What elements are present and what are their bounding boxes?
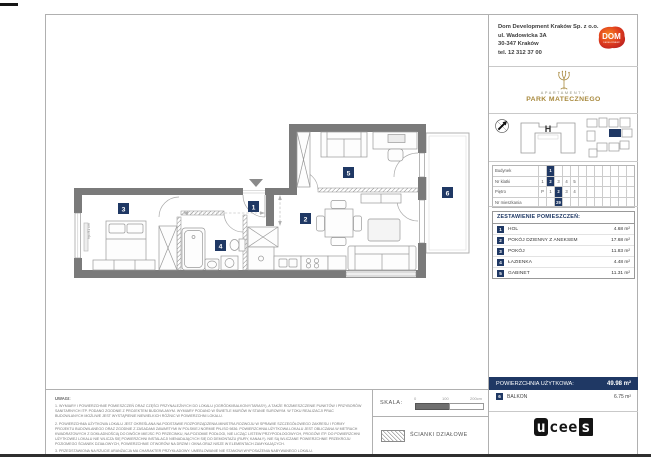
svg-text:6: 6 <box>446 190 450 197</box>
location-cell: 4 <box>562 177 570 187</box>
location-table-row: PiętroP1234 <box>493 186 634 197</box>
legend-label: ŚCIANKI DZIAŁOWE <box>410 432 468 438</box>
brand-upper-label: APARTAMENTY <box>489 91 638 95</box>
room-number-badge: 3 <box>497 248 504 255</box>
svg-text:H: H <box>545 124 552 134</box>
scale-bar-dark-segment <box>415 403 450 410</box>
overview-section: H <box>489 113 638 161</box>
sheet-frame: hp=91 cm 1 2 3 4 5 <box>45 14 638 455</box>
floor-plan: hp=91 cm 1 2 3 4 5 <box>46 15 488 389</box>
location-cell: 4 <box>570 187 578 197</box>
brand-section: APARTAMENTY PARK MATECZNEGO <box>489 66 638 113</box>
location-cell <box>594 166 602 176</box>
company-phone: tel. 12 312 37 00 <box>498 49 599 58</box>
furniture-bedroom <box>84 221 177 270</box>
usable-area-bar: POWIERZCHNIA UŻYTKOWA: 49.98 m² <box>489 377 638 390</box>
room-name: GABINET <box>508 271 530 276</box>
svg-text:4: 4 <box>219 243 223 250</box>
room-area: 17.68 m² <box>611 238 630 243</box>
site-plan-map <box>584 117 636 159</box>
company-street: ul. Wadowicka 3A <box>498 32 599 41</box>
location-cell <box>562 166 570 176</box>
room-name: POKÓJ <box>508 249 525 254</box>
location-cell <box>626 177 634 187</box>
svg-text:3: 3 <box>122 206 126 213</box>
badge-bathroom: 4 <box>215 240 226 251</box>
location-cell: 3 <box>554 177 562 187</box>
scale-section: SKALA: 0 100 200cm <box>372 389 488 416</box>
furniture-bathroom <box>182 228 245 270</box>
note-line: 1. WYMIARY I POWIERZCHNIE POMIESZCZEŃ OR… <box>55 404 362 419</box>
room-row: 1HOL4.68 m² <box>493 224 634 234</box>
location-cell <box>610 166 618 176</box>
location-cell <box>570 166 578 176</box>
partition-hatch-swatch <box>381 430 405 442</box>
room-name: POKÓJ DZIENNY Z ANEKSEM <box>508 238 578 243</box>
legend-section: ŚCIANKI DZIAŁOWE <box>372 416 488 454</box>
note-line: 2. POWIERZCHNIA UŻYTKOWA LOKALU JEST OKR… <box>55 422 362 447</box>
room-area: 11.31 m² <box>611 271 630 276</box>
location-row-label: Budynek <box>493 166 538 176</box>
room-name: HOL <box>508 227 518 232</box>
location-cell <box>618 187 626 197</box>
scale-tick-200: 200cm <box>470 396 482 401</box>
ucees-logo: ucees <box>489 418 638 436</box>
company-section: Dom Development Kraków Sp. z o.o. ul. Wa… <box>489 15 638 66</box>
location-cell <box>610 187 618 197</box>
location-cell <box>586 187 594 197</box>
entrance-arrow-icon <box>249 179 263 187</box>
ucees-logo-mid: cee <box>548 418 579 436</box>
room-number-badge: 2 <box>497 237 504 244</box>
balcony-row: 6 BALKON 6.75 m² <box>489 390 638 403</box>
ucees-logo-left: u <box>534 418 548 436</box>
location-cell <box>594 187 602 197</box>
location-table-section: Budynek1Nr klatki12345PiętroP1234Nr mies… <box>489 161 638 206</box>
company-address: Dom Development Kraków Sp. z o.o. ul. Wa… <box>498 23 599 57</box>
room-row: 5GABINET11.31 m² <box>493 267 634 278</box>
building-outline: H <box>515 117 581 159</box>
balcony-name: BALKON <box>507 394 527 400</box>
highlighted-unit <box>609 129 621 137</box>
scale-label: SKALA: <box>380 400 403 406</box>
balcony-badge: 6 <box>496 393 503 400</box>
ucees-logo-right: s <box>579 418 593 436</box>
rooms-table: ZESTAWIENIE POMIESZCZEŃ: 1HOL4.68 m²2POK… <box>492 211 635 279</box>
location-cell: 1 <box>546 187 554 197</box>
location-cell: 1 <box>538 177 546 187</box>
scale-bar-light-segment <box>449 403 484 410</box>
scale-tick-100: 100 <box>442 396 449 401</box>
rooms-table-body: 1HOL4.68 m²2POKÓJ DZIENNY Z ANEKSEM17.68… <box>493 224 634 278</box>
usable-area-label: POWIERZCHNIA UŻYTKOWA: <box>496 381 574 387</box>
room-area: 4.48 m² <box>614 260 630 265</box>
location-cell: P <box>538 187 546 197</box>
location-table: Budynek1Nr klatki12345PiętroP1234Nr mies… <box>492 165 635 208</box>
location-cell <box>578 177 586 187</box>
location-cell: 3 <box>562 187 570 197</box>
badge-balcony: 6 <box>442 187 453 198</box>
room-number-badge: 1 <box>497 226 504 233</box>
scale-tick-0: 0 <box>414 396 416 401</box>
window-height-label: hp=91 cm <box>87 223 91 239</box>
location-cell <box>554 166 562 176</box>
location-cell: 2 <box>554 187 562 197</box>
badge-bedroom: 3 <box>118 203 129 214</box>
badge-living: 2 <box>300 213 311 224</box>
location-cell <box>618 166 626 176</box>
badge-hol: 1 <box>248 201 259 212</box>
balcony-area: 6.75 m² <box>614 394 631 400</box>
location-cell <box>602 187 610 197</box>
brand-name-label: PARK MATECZNEGO <box>489 96 638 103</box>
location-row-label: Nr klatki <box>493 177 538 187</box>
notes-body: 1. WYMIARY I POWIERZCHNIE POMIESZCZEŃ OR… <box>55 404 362 454</box>
location-cell <box>626 166 634 176</box>
location-cell <box>578 187 586 197</box>
footer-bar <box>0 454 651 457</box>
company-name: Dom Development Kraków Sp. z o.o. <box>498 23 599 32</box>
location-cell <box>610 177 618 187</box>
location-cell <box>578 166 586 176</box>
svg-text:2: 2 <box>304 216 308 223</box>
notes-section: UWAGI: 1. WYMIARY I POWIERZCHNIE POMIESZ… <box>46 389 372 454</box>
room-area: 11.83 m² <box>611 249 630 254</box>
room-number-badge: 4 <box>497 259 504 266</box>
location-cell: 1 <box>546 166 554 176</box>
room-number-badge: 5 <box>497 270 504 277</box>
location-table-row: Budynek1 <box>493 166 634 176</box>
tree-icon <box>555 70 573 90</box>
location-cell <box>538 166 546 176</box>
location-cell <box>586 166 594 176</box>
location-table-row: Nr klatki12345 <box>493 176 634 187</box>
compass-icon <box>494 118 510 134</box>
location-cell: 5 <box>570 177 578 187</box>
info-column: Dom Development Kraków Sp. z o.o. ul. Wa… <box>488 15 638 454</box>
rooms-table-title: ZESTAWIENIE POMIESZCZEŃ: <box>493 212 634 224</box>
location-row-label: Piętro <box>493 187 538 197</box>
rooms-section: ZESTAWIENIE POMIESZCZEŃ: 1HOL4.68 m²2POK… <box>489 206 638 279</box>
location-cell <box>602 177 610 187</box>
badge-office: 5 <box>343 167 354 178</box>
room-name: ŁAZIENKA <box>508 260 532 265</box>
room-row: 2POKÓJ DZIENNY Z ANEKSEM17.68 m² <box>493 234 634 245</box>
location-cell: 2 <box>546 177 554 187</box>
location-cell <box>586 177 594 187</box>
page-corner-mark <box>0 3 18 6</box>
column-divider <box>489 411 638 412</box>
svg-text:DEVELOPMENT: DEVELOPMENT <box>603 42 620 44</box>
notes-title: UWAGI: <box>55 396 362 401</box>
usable-area-value: 49.98 m² <box>607 381 631 387</box>
svg-text:1: 1 <box>252 204 256 211</box>
location-cell <box>602 166 610 176</box>
svg-text:5: 5 <box>347 170 351 177</box>
furniture-office <box>297 132 417 187</box>
room-row: 3POKÓJ11.83 m² <box>493 245 634 256</box>
location-cell <box>594 177 602 187</box>
dom-development-logo: DOM DEVELOPMENT <box>593 23 629 53</box>
company-city: 30-347 Kraków <box>498 40 599 49</box>
location-cell <box>626 187 634 197</box>
location-cell <box>618 177 626 187</box>
svg-text:DOM: DOM <box>602 32 621 41</box>
room-area: 4.68 m² <box>614 227 630 232</box>
room-row: 4ŁAZIENKA4.48 m² <box>493 256 634 267</box>
